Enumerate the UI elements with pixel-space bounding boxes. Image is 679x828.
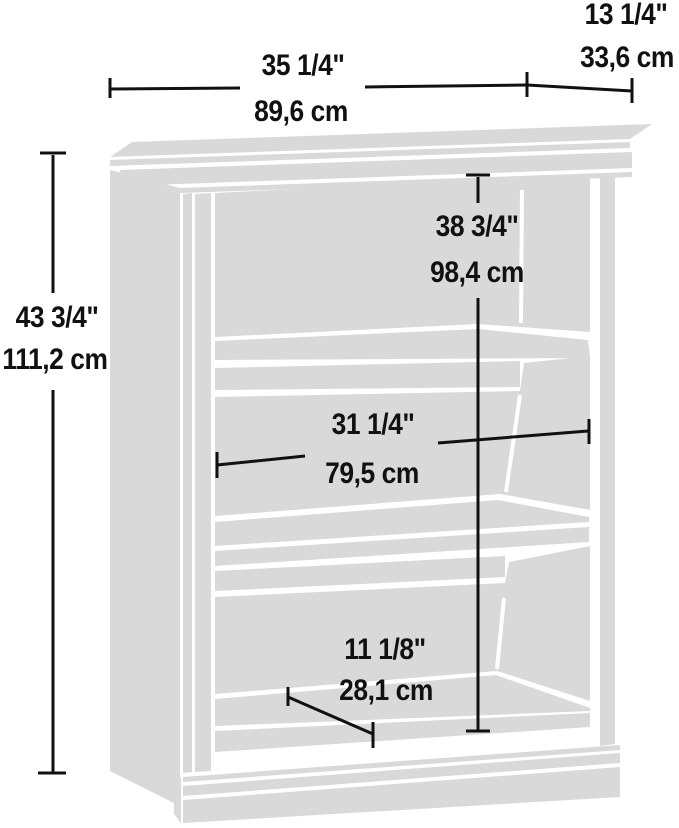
- left-side-panel: [110, 170, 180, 806]
- overall-width-inches-label: 35 1/4": [262, 49, 345, 83]
- left-stile: [195, 193, 211, 772]
- overall-width-cm-label: 89,6 cm: [254, 95, 348, 129]
- bottom-opening-inches-label: 11 1/8": [344, 633, 425, 667]
- left-side: [110, 170, 211, 806]
- interior-height-cm-label: 98,4 cm: [430, 256, 524, 290]
- bottom-opening-cm-label: 28,1 cm: [339, 674, 433, 708]
- right-stile: [600, 175, 615, 746]
- interior-height-inches-label: 38 3/4": [436, 210, 519, 244]
- base-left-endcap: [174, 777, 181, 823]
- depth-cm-label: 33,6 cm: [580, 41, 674, 75]
- compartment-1-back: [215, 174, 590, 337]
- overall-height-cm-label: 111,2 cm: [2, 343, 107, 377]
- overall-height-inches-label: 43 3/4": [16, 301, 99, 335]
- interior-width-inches-label: 31 1/4": [332, 408, 415, 442]
- depth-dimension-line: [527, 78, 632, 103]
- overall-height-dimension-line: [38, 153, 66, 773]
- left-panel-front-edge: [183, 193, 192, 773]
- shelf-1-rail: [215, 361, 520, 390]
- interior-width-cm-label: 79,5 cm: [325, 457, 419, 491]
- dimension-diagram: 35 1/4" 89,6 cm 13 1/4" 33,6 cm 43 3/4" …: [0, 0, 679, 828]
- base: [174, 745, 620, 823]
- depth-inches-label: 13 1/4": [585, 0, 668, 32]
